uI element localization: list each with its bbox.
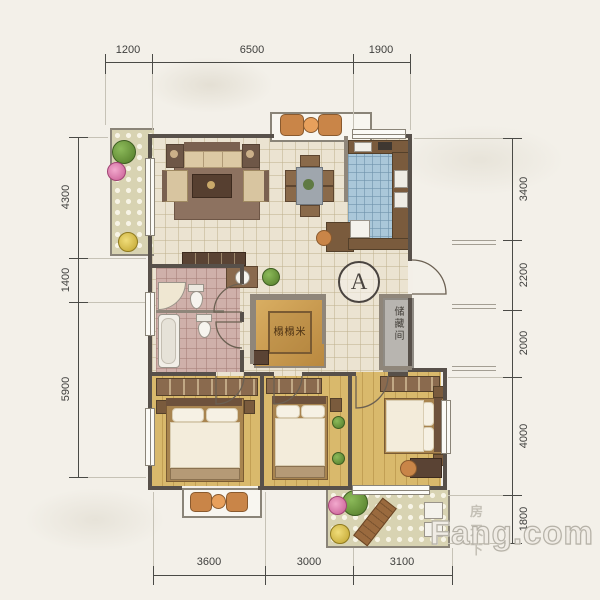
dim-left-0: 4300 [60,185,72,209]
dim-tick [503,138,522,139]
dim-right-2: 2000 [518,331,530,355]
dim-tick [503,377,522,378]
dim-tick [265,566,266,585]
dim-tick [153,566,154,585]
dim-tick [353,566,354,585]
dim-tick [69,137,88,138]
bed2-door-arc [274,376,302,404]
dim-tick [69,258,88,259]
dim-top-0: 1200 [116,44,140,56]
dim-line-right [512,138,513,543]
dim-top-1: 6500 [240,44,264,56]
dim-tick [503,495,522,496]
section-marker-a: A [338,261,380,303]
dim-bottom-2: 3100 [390,556,414,568]
dim-tick [503,310,522,311]
dim-bottom-0: 3600 [197,556,221,568]
dim-tick [503,240,522,241]
dim-tick [452,566,453,585]
bed3-door-arc [356,376,388,408]
bath-lower-door-arc [216,322,242,348]
entry-door-arc [412,260,446,294]
dim-bottom-1: 3000 [297,556,321,568]
tatami-room-label: 榻榻米 [271,323,309,338]
dim-right-1: 2200 [518,263,530,287]
dim-line-left [78,137,79,477]
door-arcs [0,0,600,600]
dim-right-3: 4000 [518,424,530,448]
dim-tick [410,54,411,74]
dim-tick [353,54,354,74]
bath-upper-door-arc [214,284,242,312]
dim-line-bottom [153,575,452,576]
dim-top-2: 1900 [369,44,393,56]
floor-plan-canvas: 榻榻米 储藏间 A [0,0,600,600]
bed1-door-arc [216,376,244,404]
dim-tick [69,302,88,303]
storage-room-label: 储藏间 [390,306,405,342]
section-marker-letter: A [351,269,368,295]
dim-line-top [105,62,410,63]
dim-tick [152,54,153,74]
dim-right-0: 3400 [518,177,530,201]
dim-left-1: 1400 [60,268,72,292]
dim-tick [105,54,106,74]
dim-left-2: 5900 [60,377,72,401]
watermark-en: Fang.com [430,514,594,552]
dim-tick [69,477,88,478]
